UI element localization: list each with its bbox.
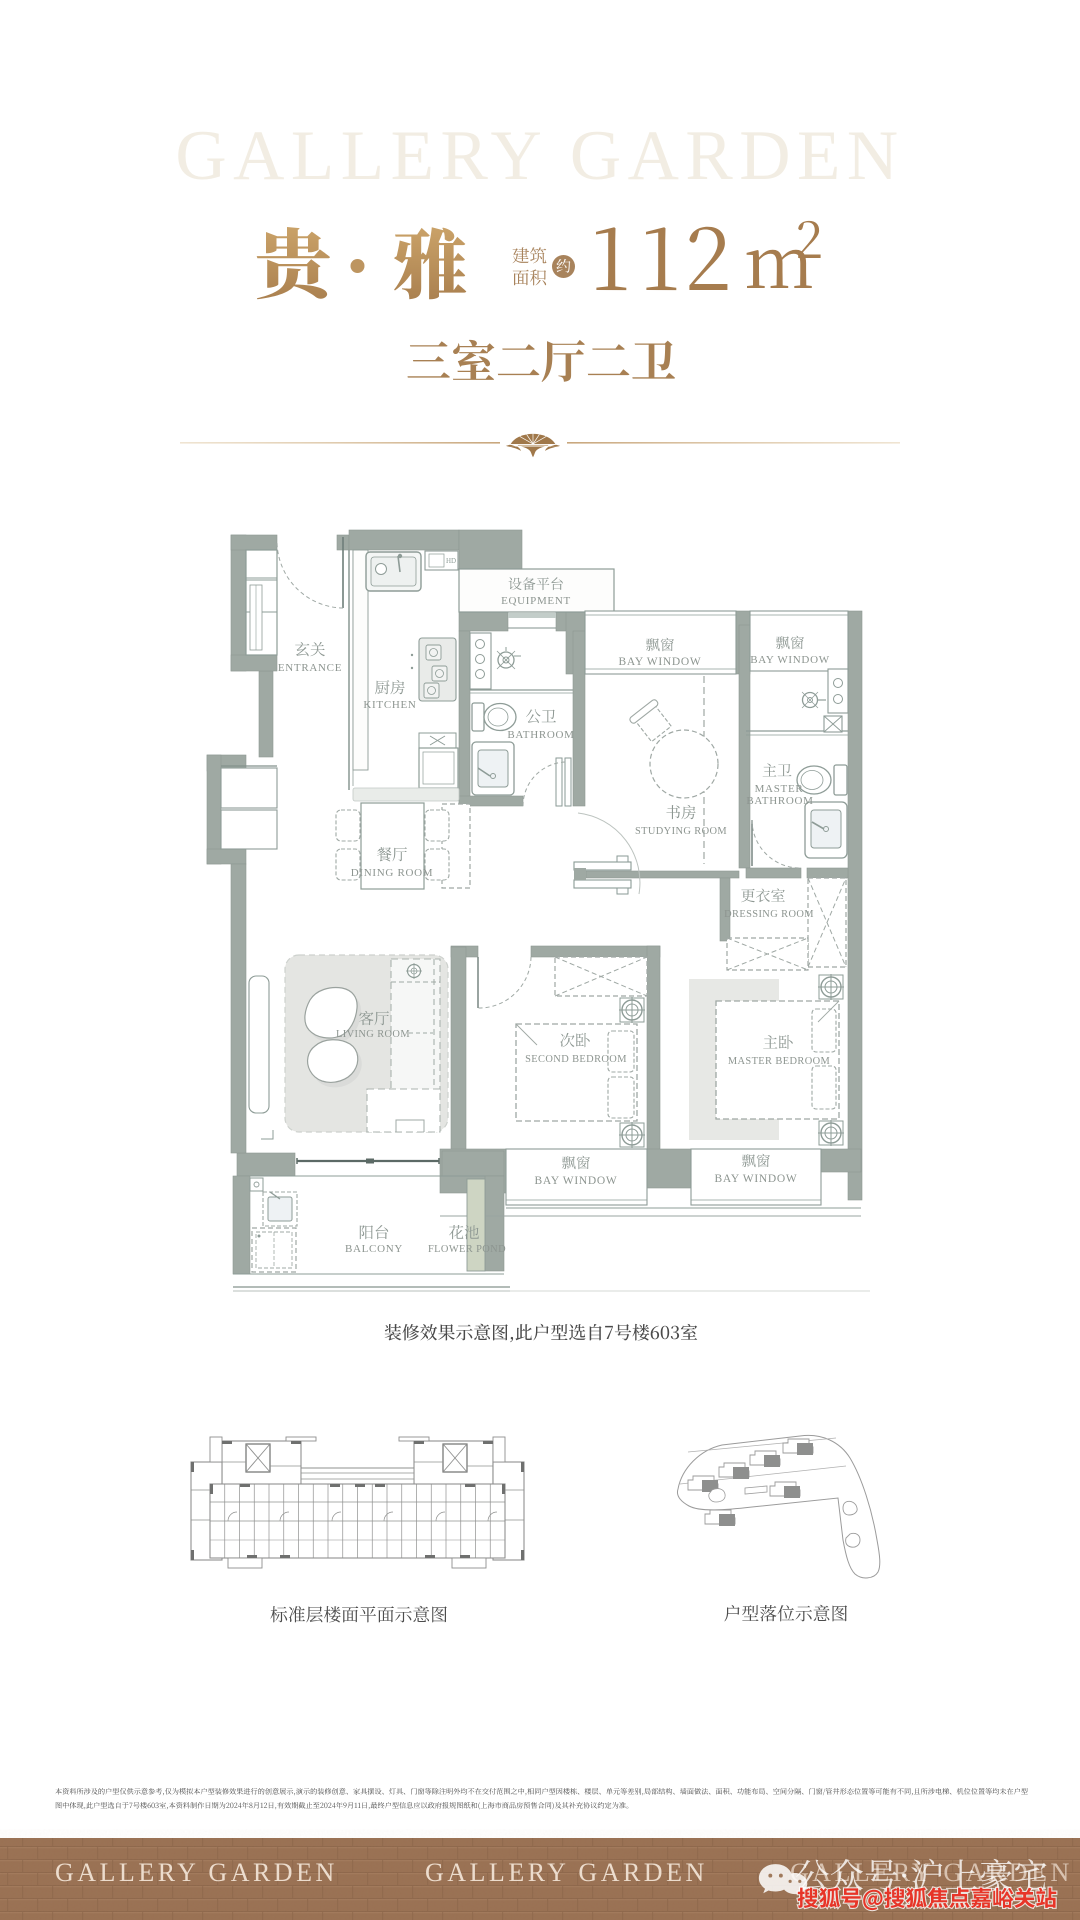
svg-text:EQUIPMENT: EQUIPMENT — [501, 595, 571, 607]
svg-text:GALLERY GARDEN: GALLERY GARDEN — [425, 1858, 708, 1887]
svg-text:FLOWER POND: FLOWER POND — [428, 1244, 506, 1255]
svg-text:BAY WINDOW: BAY WINDOW — [715, 1173, 798, 1185]
svg-text:ENTRANCE: ENTRANCE — [278, 662, 342, 674]
svg-text:BATHROOM: BATHROOM — [507, 729, 574, 741]
svg-text:MASTER: MASTER — [755, 783, 804, 795]
svg-text:DINING ROOM: DINING ROOM — [351, 867, 434, 879]
svg-text:BALCONY: BALCONY — [345, 1243, 403, 1255]
svg-text:HD: HD — [446, 557, 456, 565]
svg-text:KITCHEN: KITCHEN — [363, 699, 416, 711]
svg-text:MASTER BEDROOM: MASTER BEDROOM — [728, 1056, 830, 1067]
svg-text:STUDYING ROOM: STUDYING ROOM — [635, 826, 727, 837]
svg-text:BATHROOM: BATHROOM — [746, 795, 813, 807]
svg-text:GALLERY GARDEN: GALLERY GARDEN — [55, 1858, 338, 1887]
svg-text:BAY WINDOW: BAY WINDOW — [619, 656, 702, 668]
svg-text:SECOND BEDROOM: SECOND BEDROOM — [525, 1054, 627, 1065]
svg-text:BAY WINDOW: BAY WINDOW — [750, 654, 830, 666]
svg-text:BAY WINDOW: BAY WINDOW — [535, 1175, 618, 1187]
svg-text:GALLERY GARDEN: GALLERY GARDEN — [790, 1858, 1073, 1887]
svg-text:DRESSING ROOM: DRESSING ROOM — [724, 909, 814, 920]
svg-text:LIVING ROOM: LIVING ROOM — [336, 1029, 410, 1040]
